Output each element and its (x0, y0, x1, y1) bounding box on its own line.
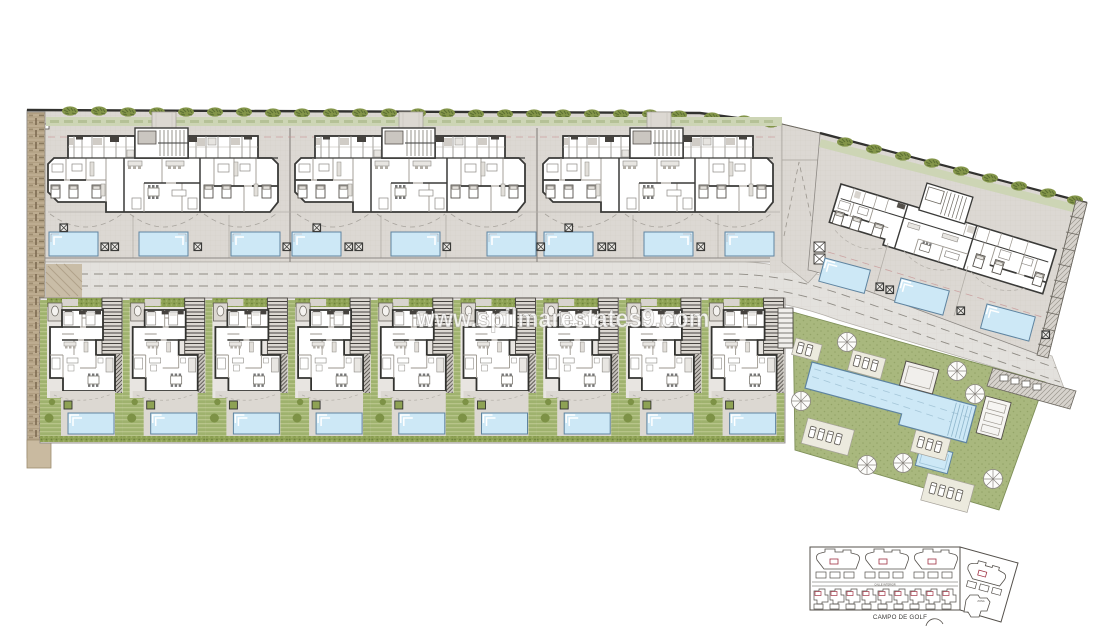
svg-text:www.spilmarestates9.com: www.spilmarestates9.com (416, 303, 710, 333)
svg-text:CALLE INTERIOR: CALLE INTERIOR (874, 583, 895, 587)
svg-text:ZONA: ZONA (977, 599, 984, 603)
svg-text:CAMPO DE GOLF: CAMPO DE GOLF (873, 614, 927, 621)
